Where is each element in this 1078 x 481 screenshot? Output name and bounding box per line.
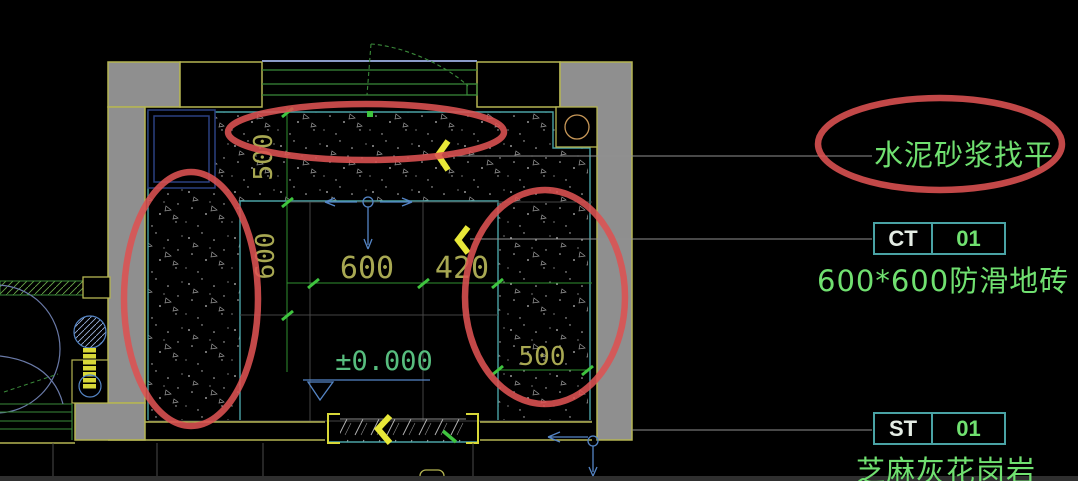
dim-top-band: 500 (249, 134, 279, 181)
ct-description: 600*600防滑地砖 (817, 266, 1069, 296)
top-window (262, 44, 477, 95)
st-code: ST (875, 414, 933, 443)
stone-threshold (328, 414, 478, 443)
dim-right-band: 500 (519, 342, 566, 372)
leveling-note: 水泥砂浆找平 (874, 140, 1054, 170)
st-description: 芝麻灰花岗岩 (856, 456, 1036, 481)
ct-number: 01 (933, 224, 1004, 253)
cad-canvas[interactable]: 500 600 600 420 500 ±0.000 水泥砂浆找平 CT (0, 0, 1078, 481)
bottom-leader-arrow (548, 432, 598, 476)
tile-start-marker (325, 197, 412, 249)
door-swing-left (0, 356, 63, 404)
level-value: ±0.000 (335, 346, 433, 377)
dim-tile-main: 600 (340, 251, 394, 286)
ct-code: CT (875, 224, 933, 253)
pipe-stack (83, 348, 96, 389)
st-tag: ST 01 (873, 412, 1006, 445)
floor-drain-hatched (74, 316, 106, 348)
floor-drain-corner (556, 107, 597, 147)
dim-tile-cut: 420 (435, 251, 489, 286)
ct-tag: CT 01 (873, 222, 1006, 255)
section-lines-below (53, 443, 473, 477)
st-number: 01 (933, 414, 1004, 443)
level-symbol (303, 380, 430, 400)
washbasin-circle (0, 285, 60, 413)
